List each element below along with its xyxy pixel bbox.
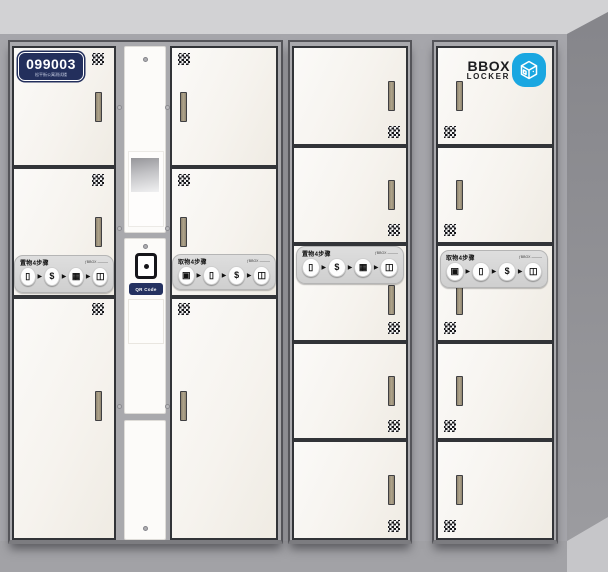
locker-door-c4-r2[interactable] bbox=[292, 146, 408, 244]
door-handle[interactable] bbox=[180, 92, 187, 122]
console-lower-panel bbox=[124, 420, 166, 540]
qr-code-sticker bbox=[443, 519, 457, 533]
door-handle[interactable] bbox=[456, 285, 463, 315]
strip-brand-mark: ƒBBOX ——— bbox=[85, 260, 108, 264]
locker-door-c3-r1[interactable] bbox=[170, 46, 278, 167]
locker-door-c5-r5[interactable] bbox=[436, 440, 554, 540]
door-handle[interactable] bbox=[95, 391, 102, 421]
console-screen-bezel bbox=[128, 151, 164, 227]
door-handle[interactable] bbox=[180, 217, 187, 247]
qr-code-sticker bbox=[91, 173, 105, 187]
qr-code-sticker bbox=[91, 52, 105, 66]
door-handle[interactable] bbox=[95, 217, 102, 247]
instruction-strip-pickup: 取物4步骤 ƒBBOX ——— ▣ ▶ ▯ ▶ $ ▶ ◫ bbox=[440, 250, 548, 288]
door-handle[interactable] bbox=[388, 180, 395, 210]
screw-icon bbox=[143, 526, 148, 531]
locker-scene: 099003 松平街公寓测试楼 QR Code bbox=[0, 0, 608, 572]
qr-code-sticker bbox=[177, 52, 191, 66]
qr-scanner[interactable] bbox=[135, 253, 157, 279]
qr-code-sticker bbox=[387, 519, 401, 533]
strip-title: 取物4步骤 bbox=[446, 253, 475, 262]
deposit-parcel-icon: ▦ bbox=[68, 267, 84, 286]
door-handle[interactable] bbox=[388, 285, 395, 315]
floor bbox=[0, 541, 608, 572]
qr-code-sticker bbox=[177, 173, 191, 187]
close-door-icon: ◫ bbox=[92, 267, 108, 286]
console-scanner-panel: QR Code bbox=[124, 238, 166, 414]
locker-door-c4-r1[interactable] bbox=[292, 46, 408, 146]
strip-brand-mark: ƒBBOX ——— bbox=[247, 259, 270, 263]
pay-icon: $ bbox=[498, 262, 516, 281]
bbox-logo-subtext: LOCKER bbox=[467, 73, 510, 81]
door-handle[interactable] bbox=[388, 475, 395, 505]
arrow-right-icon: ▶ bbox=[222, 273, 227, 279]
arrow-right-icon: ▶ bbox=[492, 269, 497, 275]
qr-code-sticker bbox=[387, 125, 401, 139]
bbox-logo-text: BBOX bbox=[467, 59, 510, 73]
locker-id-badge: 099003 松平街公寓测试楼 bbox=[18, 52, 84, 81]
rivet-icon bbox=[117, 404, 122, 409]
rivet-icon bbox=[117, 226, 122, 231]
arrow-right-icon: ▶ bbox=[348, 265, 353, 271]
scan-phone-icon: ▯ bbox=[302, 258, 320, 277]
pay-icon: $ bbox=[44, 267, 60, 286]
locker-door-c1-r1[interactable]: 099003 松平街公寓测试楼 bbox=[12, 46, 116, 167]
pay-icon: $ bbox=[328, 258, 346, 277]
open-door-icon: ◫ bbox=[253, 266, 270, 285]
screw-icon bbox=[143, 244, 148, 249]
door-handle[interactable] bbox=[456, 81, 463, 111]
qr-code-sticker bbox=[443, 321, 457, 335]
arrow-right-icon: ▶ bbox=[374, 265, 379, 271]
qr-code-sticker bbox=[387, 419, 401, 433]
qr-code-label: QR Code bbox=[129, 283, 163, 295]
pay-icon: $ bbox=[228, 266, 245, 285]
door-handle[interactable] bbox=[456, 376, 463, 406]
door-handle[interactable] bbox=[456, 180, 463, 210]
qr-code-icon: ▣ bbox=[178, 266, 195, 285]
qr-code-sticker bbox=[443, 419, 457, 433]
strip-title: 取物4步骤 bbox=[178, 257, 207, 266]
locker-door-c4-r4[interactable] bbox=[292, 342, 408, 440]
scan-phone-icon: ▯ bbox=[472, 262, 490, 281]
door-handle[interactable] bbox=[388, 376, 395, 406]
qr-code-icon: ▣ bbox=[446, 262, 464, 281]
rivet-icon bbox=[117, 105, 122, 110]
bbox-cube-icon bbox=[512, 53, 546, 87]
arrow-right-icon: ▶ bbox=[466, 269, 471, 275]
qr-code-sticker bbox=[91, 302, 105, 316]
locker-door-c5-r2[interactable] bbox=[436, 146, 554, 244]
deposit-parcel-icon: ▦ bbox=[354, 258, 372, 277]
scan-phone-icon: ▯ bbox=[20, 267, 36, 286]
qr-code-sticker bbox=[177, 302, 191, 316]
locker-id-number: 099003 bbox=[26, 57, 76, 72]
bbox-logo: BBOX LOCKER bbox=[467, 53, 546, 87]
scan-phone-icon: ▯ bbox=[203, 266, 220, 285]
open-door-icon: ◫ bbox=[524, 262, 542, 281]
console-screen[interactable] bbox=[131, 158, 159, 192]
arrow-right-icon: ▶ bbox=[86, 274, 91, 280]
instruction-strip-deposit: 置物4步骤 ƒBBOX ——— ▯ ▶ $ ▶ ▦ ▶ ◫ bbox=[14, 255, 114, 293]
locker-door-c4-r5[interactable] bbox=[292, 440, 408, 540]
door-handle[interactable] bbox=[388, 81, 395, 111]
locker-door-c5-r4[interactable] bbox=[436, 342, 554, 440]
arrow-right-icon: ▶ bbox=[197, 273, 202, 279]
card-reader-area[interactable] bbox=[128, 299, 164, 344]
strip-brand-mark: ƒBBOX ——— bbox=[375, 251, 398, 255]
door-handle[interactable] bbox=[95, 92, 102, 122]
close-door-icon: ◫ bbox=[380, 258, 398, 277]
locker-door-c1-r3[interactable] bbox=[12, 297, 116, 540]
scanner-lens-icon bbox=[144, 264, 149, 269]
locker-id-sublabel: 松平街公寓测试楼 bbox=[35, 72, 67, 77]
arrow-right-icon: ▶ bbox=[518, 269, 523, 275]
arrow-right-icon: ▶ bbox=[247, 273, 252, 279]
arrow-right-icon: ▶ bbox=[38, 274, 43, 280]
strip-brand-mark: ƒBBOX ——— bbox=[519, 255, 542, 259]
arrow-right-icon: ▶ bbox=[62, 274, 67, 280]
door-handle[interactable] bbox=[456, 475, 463, 505]
strip-title: 置物4步骤 bbox=[302, 249, 331, 258]
qr-code-sticker bbox=[443, 125, 457, 139]
arrow-right-icon: ▶ bbox=[322, 265, 327, 271]
locker-door-c3-r3[interactable] bbox=[170, 297, 278, 540]
qr-code-sticker bbox=[387, 321, 401, 335]
qr-code-sticker bbox=[443, 223, 457, 237]
screw-icon bbox=[143, 57, 148, 62]
instruction-strip-pickup: 取物4步骤 ƒBBOX ——— ▣ ▶ ▯ ▶ $ ▶ ◫ bbox=[172, 254, 276, 290]
strip-title: 置物4步骤 bbox=[20, 258, 49, 267]
console-upper-panel bbox=[124, 46, 166, 233]
locker-door-c5-r1[interactable]: BBOX LOCKER bbox=[436, 46, 554, 146]
qr-code-sticker bbox=[387, 223, 401, 237]
door-handle[interactable] bbox=[180, 391, 187, 421]
instruction-strip-deposit: 置物4步骤 ƒBBOX ——— ▯ ▶ $ ▶ ▦ ▶ ◫ bbox=[296, 246, 404, 284]
